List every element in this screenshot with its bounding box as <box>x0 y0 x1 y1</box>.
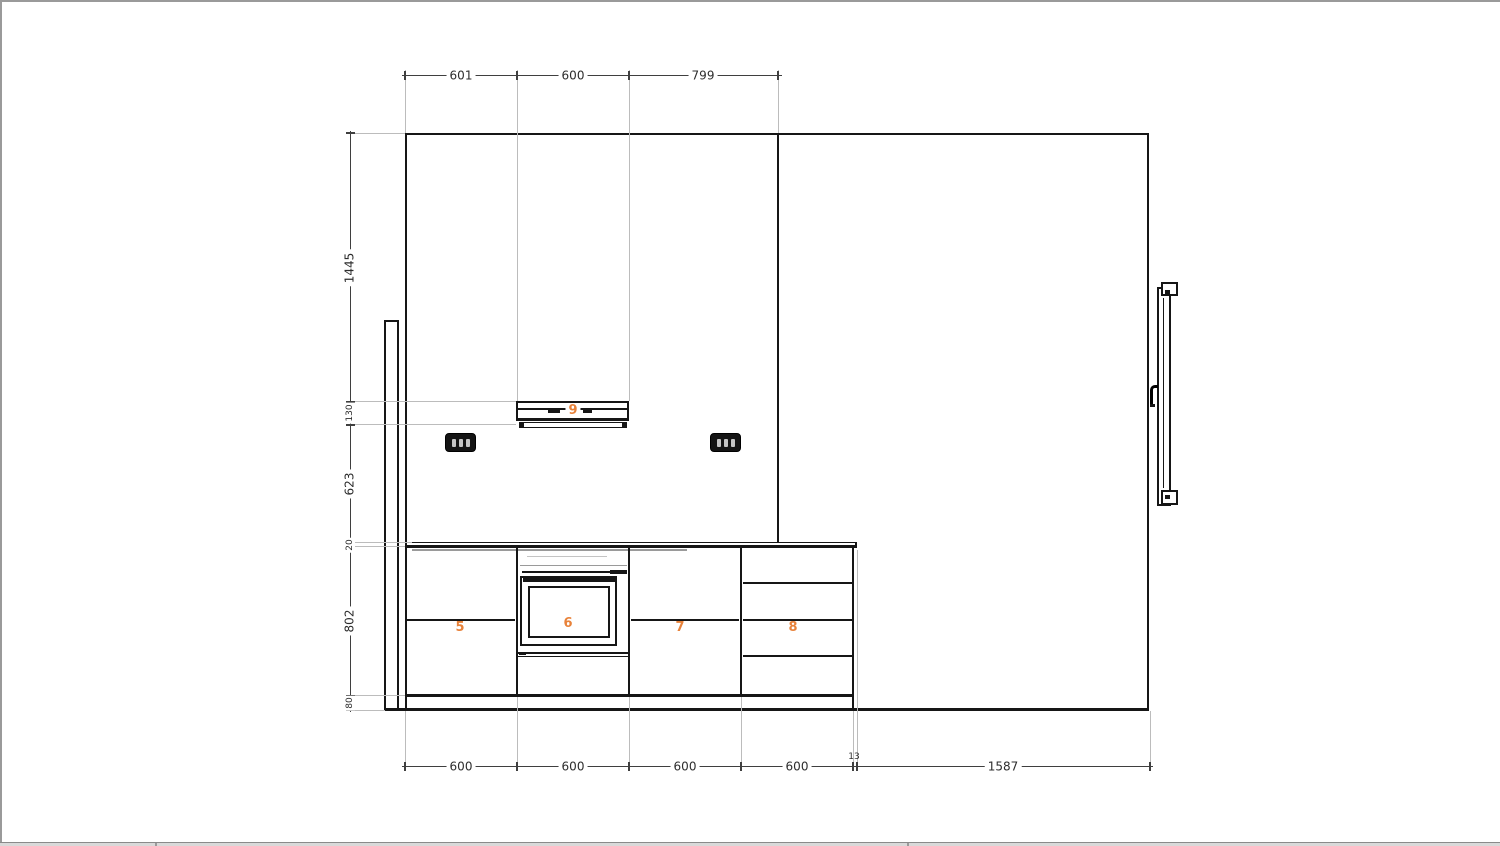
countertop-right-end <box>855 542 857 548</box>
oven-unit-number: 6 <box>563 617 572 631</box>
door-leaf-inner-line <box>1163 298 1164 488</box>
hood-lower-lip <box>519 422 627 428</box>
extension-line <box>629 697 630 770</box>
dim-label-top-2: 600 <box>559 70 588 83</box>
hood-lip-end-left <box>519 422 524 428</box>
wall-right-edge <box>1147 133 1149 710</box>
extension-line <box>857 550 858 770</box>
extension-line <box>346 401 516 402</box>
countertop[interactable] <box>405 542 857 543</box>
side-filler-panel[interactable] <box>384 320 399 710</box>
dim-tick <box>740 762 742 771</box>
dim-label-top-1: 601 <box>447 70 476 83</box>
dim-tick <box>1149 762 1151 771</box>
door-top-bracket-nub <box>1165 290 1170 294</box>
page-border-left <box>0 0 2 846</box>
extension-line <box>346 542 412 543</box>
dim-label-bottom-1587: 1587 <box>985 761 1022 774</box>
extension-line <box>517 697 518 770</box>
base-divider-3 <box>740 548 742 696</box>
socket-pin-icon <box>466 439 470 447</box>
wall-socket-right[interactable] <box>710 433 741 452</box>
dim-label-bottom-13: 13 <box>846 752 861 762</box>
dim-tick <box>777 71 779 80</box>
dim-label-top-3: 799 <box>689 70 718 83</box>
drawer-unit-8-line-1 <box>743 582 852 584</box>
dim-tick <box>346 424 355 426</box>
dim-tick <box>852 762 854 771</box>
extension-line <box>346 424 516 425</box>
hood-control-dash-left <box>548 410 560 413</box>
page-border-top <box>0 0 1500 2</box>
dim-tick <box>516 762 518 771</box>
base-divider-1 <box>516 548 518 696</box>
drawer-unit-8-line-3 <box>743 655 852 657</box>
base-divider-2 <box>628 548 630 696</box>
socket-pin-icon <box>452 439 456 447</box>
dim-label-left-1445: 1445 <box>344 250 357 287</box>
dim-label-bottom-2: 600 <box>559 761 588 774</box>
oven-top-squiggle <box>527 556 607 557</box>
dim-label-left-80: 80 <box>345 695 355 710</box>
extension-line <box>629 70 630 401</box>
dim-label-left-802: 802 <box>344 607 357 636</box>
dim-tick <box>404 71 406 80</box>
oven-handle-bar <box>523 578 615 582</box>
dim-label-bottom-4: 600 <box>783 761 812 774</box>
dim-label-left-623: 623 <box>344 470 357 499</box>
hood-control-dash-right <box>583 410 592 413</box>
oven-lower-drawer-line-2 <box>518 656 628 657</box>
extension-line <box>741 697 742 770</box>
countertop-shadow <box>412 549 687 551</box>
door-bottom-bracket-nub <box>1165 495 1170 499</box>
drawer-unit-8-number: 8 <box>788 621 797 635</box>
cad-drawing-canvas: 9 5 6 7 8 <box>0 0 1500 846</box>
hood-lip-end-right <box>622 422 627 428</box>
oven-panel-gray-line <box>520 565 627 566</box>
base-right-end-panel <box>852 548 854 709</box>
socket-pin-icon <box>717 439 721 447</box>
base-unit-7-door-split <box>631 619 739 621</box>
socket-pin-icon <box>731 439 735 447</box>
base-unit-5-number: 5 <box>455 621 464 635</box>
wall-division-line <box>777 133 779 543</box>
dim-label-bottom-3: 600 <box>671 761 700 774</box>
dim-tick <box>516 71 518 80</box>
hood-unit-number: 9 <box>565 404 580 418</box>
dim-tick <box>628 762 630 771</box>
base-unit-7-number: 7 <box>675 621 684 635</box>
oven-control-panel-end <box>610 570 627 574</box>
oven-lower-drawer-tick <box>519 652 526 655</box>
wall-socket-left[interactable] <box>445 433 476 452</box>
dim-label-left-20: 20 <box>345 537 355 552</box>
dim-label-bottom-1: 600 <box>447 761 476 774</box>
dim-tick <box>346 132 355 134</box>
dim-tick <box>856 762 858 771</box>
dim-tick <box>628 71 630 80</box>
extension-line <box>517 70 518 401</box>
socket-pin-icon <box>724 439 728 447</box>
door-handle-foot <box>1150 404 1155 407</box>
dim-tick <box>404 762 406 771</box>
socket-pin-icon <box>459 439 463 447</box>
dim-label-left-130: 130 <box>345 402 355 423</box>
countertop-front-edge <box>405 545 857 548</box>
floor-line <box>384 708 1149 711</box>
bottom-dimension-line <box>402 766 1153 767</box>
door-leaf-side-view[interactable] <box>1157 287 1171 506</box>
wall-left-edge <box>405 133 407 710</box>
oven-lower-drawer-line-1 <box>518 652 628 654</box>
